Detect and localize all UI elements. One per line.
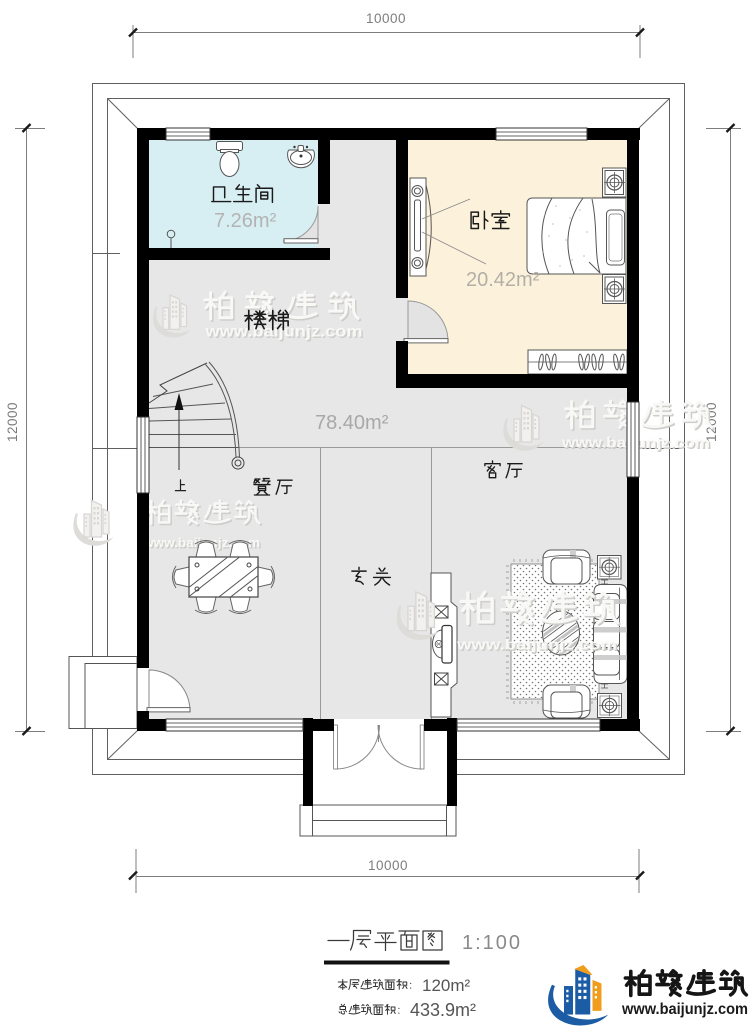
svg-text:7.26m²: 7.26m²	[214, 210, 277, 232]
svg-text:12000: 12000	[5, 402, 20, 442]
svg-text:10000: 10000	[368, 858, 408, 873]
svg-text:www.baijunjz.com: www.baijunjz.com	[621, 1001, 748, 1018]
svg-text:120m²: 120m²	[422, 976, 471, 995]
svg-text:1:100: 1:100	[462, 932, 522, 954]
svg-text:78.40m²: 78.40m²	[315, 412, 389, 434]
svg-text:20.42m²: 20.42m²	[466, 269, 540, 291]
svg-text:10000: 10000	[366, 11, 406, 26]
svg-text:www.baijunjz.com: www.baijunjz.com	[456, 637, 617, 654]
svg-text:433.9m²: 433.9m²	[410, 1000, 476, 1020]
